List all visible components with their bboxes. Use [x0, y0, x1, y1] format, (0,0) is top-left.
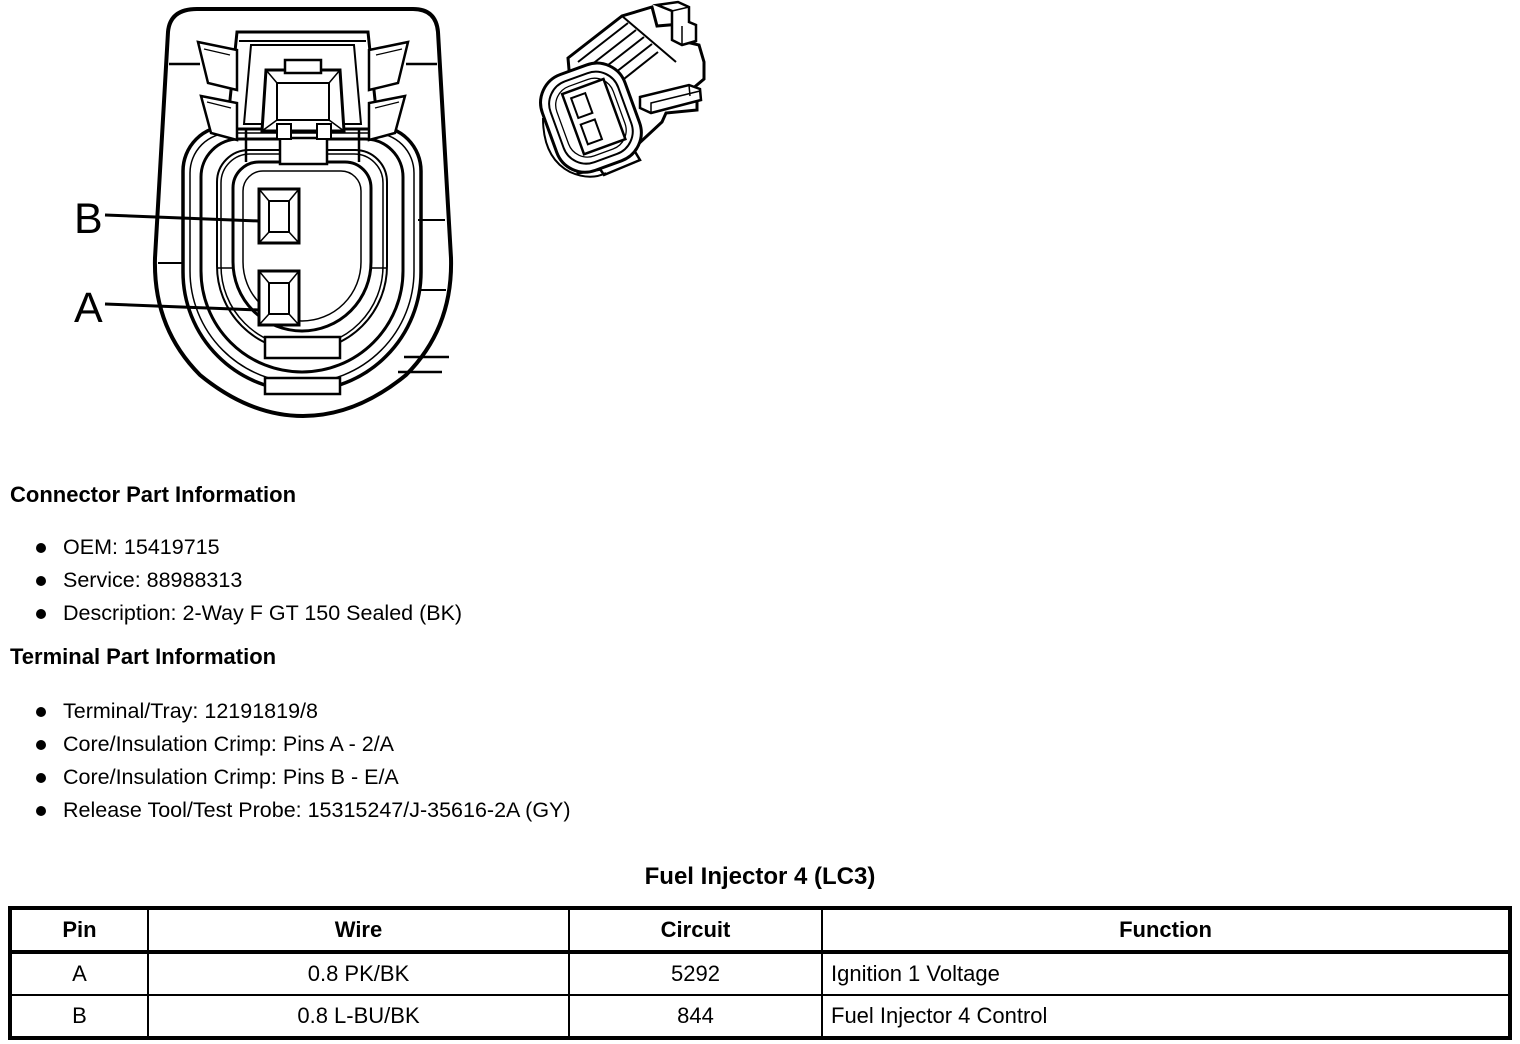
bullet-icon	[36, 773, 46, 783]
connector-part-info-heading: Connector Part Information	[10, 482, 296, 508]
connector-side-view-diagram	[532, 2, 704, 181]
pin-label-a: A	[74, 284, 103, 332]
list-item-text: Core/Insulation Crimp: Pins A - 2/A	[63, 732, 394, 757]
cell-wire-b: 0.8 L-BU/BK	[148, 995, 569, 1038]
bullet-icon	[36, 543, 46, 553]
pin-b-slot	[259, 189, 299, 243]
list-item: Core/Insulation Crimp: Pins A - 2/A	[36, 728, 571, 761]
bullet-icon	[36, 740, 46, 750]
pin-table-header-circuit: Circuit	[569, 908, 822, 952]
list-item-text: Description: 2-Way F GT 150 Sealed (BK)	[63, 601, 462, 626]
list-item: Release Tool/Test Probe: 15315247/J-3561…	[36, 794, 571, 827]
bullet-icon	[36, 806, 46, 816]
cell-wire-a: 0.8 PK/BK	[148, 952, 569, 995]
cell-pin-b: B	[10, 995, 148, 1038]
pin-table-header-row: Pin Wire Circuit Function	[10, 908, 1510, 952]
pin-label-b: B	[74, 195, 103, 243]
list-item-text: OEM: 15419715	[63, 535, 220, 560]
cell-pin-a: A	[10, 952, 148, 995]
bullet-icon	[36, 707, 46, 717]
list-item: Terminal/Tray: 12191819/8	[36, 695, 571, 728]
list-item-text: Core/Insulation Crimp: Pins B - E/A	[63, 765, 399, 790]
cell-function-b: Fuel Injector 4 Control	[822, 995, 1510, 1038]
list-item: Service: 88988313	[36, 564, 462, 597]
pin-table-title: Fuel Injector 4 (LC3)	[8, 863, 1512, 891]
pin-table: Pin Wire Circuit Function A 0.8 PK/BK 52…	[8, 906, 1512, 1040]
list-item-text: Service: 88988313	[63, 568, 242, 593]
document-page: B A	[0, 0, 1520, 1044]
terminal-part-info-heading: Terminal Part Information	[10, 644, 276, 670]
list-item-text: Terminal/Tray: 12191819/8	[63, 699, 318, 724]
list-item: Description: 2-Way F GT 150 Sealed (BK)	[36, 597, 462, 630]
bullet-icon	[36, 609, 46, 619]
pin-table-header-pin: Pin	[10, 908, 148, 952]
cell-circuit-a: 5292	[569, 952, 822, 995]
terminal-part-info-list: Terminal/Tray: 12191819/8 Core/Insulatio…	[36, 695, 571, 827]
pin-table-header-function: Function	[822, 908, 1510, 952]
pin-a-slot	[259, 271, 299, 325]
table-row: B 0.8 L-BU/BK 844 Fuel Injector 4 Contro…	[10, 995, 1510, 1038]
cell-circuit-b: 844	[569, 995, 822, 1038]
connector-diagrams: B A	[0, 0, 760, 445]
list-item-text: Release Tool/Test Probe: 15315247/J-3561…	[63, 798, 571, 823]
table-row: A 0.8 PK/BK 5292 Ignition 1 Voltage	[10, 952, 1510, 995]
list-item: Core/Insulation Crimp: Pins B - E/A	[36, 761, 571, 794]
connector-front-view-diagram: B A	[74, 9, 451, 416]
cell-function-a: Ignition 1 Voltage	[822, 952, 1510, 995]
pin-table-header-wire: Wire	[148, 908, 569, 952]
list-item: OEM: 15419715	[36, 531, 462, 564]
bullet-icon	[36, 576, 46, 586]
connector-part-info-list: OEM: 15419715 Service: 88988313 Descript…	[36, 531, 462, 630]
